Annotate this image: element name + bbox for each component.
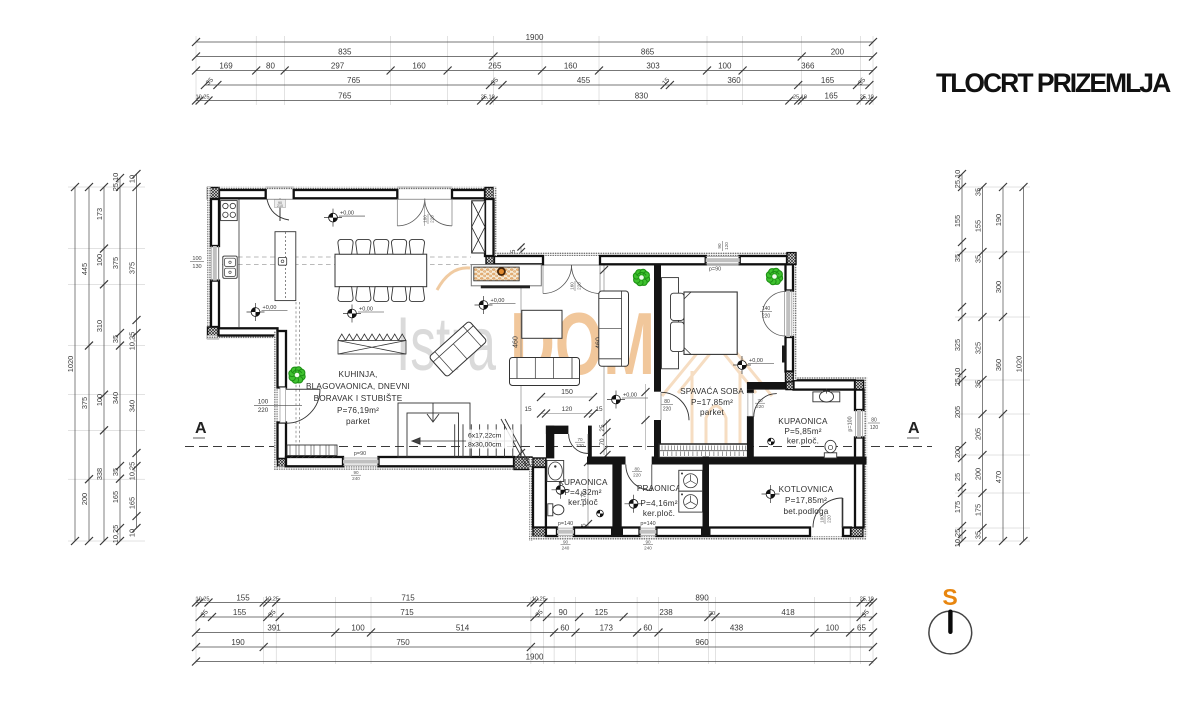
svg-text:SPAVAĆA SOBA: SPAVAĆA SOBA [680,386,744,396]
svg-text:310: 310 [95,320,104,332]
svg-text:240: 240 [352,476,360,481]
svg-text:35: 35 [953,254,962,262]
svg-text:165: 165 [127,497,136,509]
svg-text:TLOCRT PRIZEMLJA: TLOCRT PRIZEMLJA [936,68,1171,98]
svg-text:25: 25 [599,424,606,432]
svg-text:375: 375 [127,262,136,274]
svg-text:70: 70 [577,437,583,442]
svg-text:325: 325 [973,342,982,354]
svg-text:830: 830 [635,91,649,100]
svg-text:418: 418 [781,608,795,617]
svg-text:470: 470 [994,471,1003,483]
svg-text:180: 180 [423,215,428,223]
svg-text:155: 155 [233,608,247,617]
svg-text:KUPAONICA: KUPAONICA [558,478,608,487]
svg-text:210: 210 [277,204,283,208]
svg-text:220: 220 [576,443,584,448]
svg-text:25,10: 25,10 [953,368,962,387]
svg-text:PRAONICA: PRAONICA [637,484,682,493]
svg-text:265: 265 [488,61,502,70]
svg-text:70: 70 [599,438,606,446]
svg-text:80: 80 [664,399,670,405]
svg-text:10,25: 10,25 [111,525,120,544]
svg-text:P=4,16m²: P=4,16m² [640,499,677,508]
svg-text:240: 240 [562,546,570,551]
svg-text:190: 190 [994,214,1003,226]
svg-text:90: 90 [353,470,359,475]
svg-text:15: 15 [524,406,532,413]
svg-text:25,10: 25,10 [481,94,495,100]
svg-text:10,25: 10,25 [127,462,136,481]
svg-text:+0,00: +0,00 [749,358,763,364]
svg-text:205: 205 [973,428,982,440]
svg-text:165: 165 [825,91,839,100]
svg-text:160: 160 [564,61,578,70]
svg-text:+0,00: +0,00 [623,393,637,399]
svg-text:715: 715 [401,593,415,602]
svg-text:220: 220 [430,215,435,223]
svg-text:KUHINJA,: KUHINJA, [339,370,378,379]
svg-text:+0,00: +0,00 [359,307,373,313]
svg-text:6x17,22cm: 6x17,22cm [468,433,502,440]
svg-text:375: 375 [80,397,89,409]
svg-text:120: 120 [724,242,729,250]
svg-text:765: 765 [338,91,352,100]
svg-text:165: 165 [821,76,835,85]
svg-text:90: 90 [559,608,568,617]
svg-text:bet.podloga: bet.podloga [784,507,829,516]
svg-text:360: 360 [727,76,741,85]
svg-text:173: 173 [95,208,104,220]
svg-text:10,25: 10,25 [196,596,210,602]
svg-text:175: 175 [953,501,962,513]
svg-text:200: 200 [831,47,845,56]
svg-text:+0,00: +0,00 [340,211,354,217]
svg-text:35: 35 [111,468,120,476]
svg-text:BLAGOVAONICA, DNEVNI: BLAGOVAONICA, DNEVNI [306,382,410,391]
svg-text:1900: 1900 [526,33,544,42]
svg-text:360: 360 [994,359,1003,371]
svg-text:200: 200 [953,446,962,458]
svg-text:A: A [908,420,920,437]
svg-text:parket: parket [346,417,370,426]
svg-text:100: 100 [192,256,201,262]
svg-text:80: 80 [634,467,640,472]
svg-text:150: 150 [561,389,573,396]
svg-text:70: 70 [757,398,763,403]
svg-text:25,10: 25,10 [953,170,962,189]
svg-text:35: 35 [973,255,982,263]
svg-text:35: 35 [973,188,982,196]
svg-text:80: 80 [871,418,877,424]
svg-text:ker.ploč.: ker.ploč. [643,509,675,518]
svg-text:35: 35 [111,335,120,343]
svg-text:25,10: 25,10 [793,94,807,100]
svg-text:25: 25 [953,473,962,481]
svg-text:1020: 1020 [1014,356,1023,372]
svg-text:25,10: 25,10 [860,94,874,100]
svg-text:220: 220 [762,314,771,320]
svg-text:865: 865 [641,47,655,56]
svg-text:765: 765 [347,76,361,85]
svg-text:10: 10 [127,529,136,537]
svg-text:155: 155 [236,593,250,602]
svg-text:125: 125 [595,608,609,617]
svg-text:220: 220 [663,407,672,413]
svg-text:90: 90 [645,540,651,545]
svg-text:p=100: p=100 [848,416,854,431]
svg-text:297: 297 [331,61,345,70]
svg-text:P=17,85m²: P=17,85m² [691,398,733,407]
svg-text:200: 200 [973,468,982,480]
svg-text:200: 200 [80,493,89,505]
svg-text:parket: parket [700,408,724,417]
svg-text:35: 35 [973,380,982,388]
svg-text:120: 120 [870,425,879,431]
svg-text:130: 130 [192,264,201,270]
svg-text:KUPAONICA: KUPAONICA [778,417,828,426]
svg-text:25,10: 25,10 [860,596,874,602]
svg-text:445: 445 [80,263,89,275]
svg-text:10,25: 10,25 [265,596,279,602]
svg-text:100: 100 [95,394,104,406]
svg-text:391: 391 [267,623,281,632]
svg-text:KOTLOVNICA: KOTLOVNICA [779,485,834,494]
svg-text:190: 190 [231,638,245,647]
svg-text:160: 160 [570,282,575,290]
svg-text:238: 238 [659,608,673,617]
svg-text:10,25: 10,25 [532,596,546,602]
svg-text:10,25: 10,25 [953,529,962,548]
svg-text:160: 160 [412,61,426,70]
svg-text:375: 375 [111,257,120,269]
svg-text:1900: 1900 [526,652,544,661]
svg-text:100: 100 [95,254,104,266]
svg-text:325: 325 [953,339,962,351]
svg-text:240: 240 [644,546,652,551]
svg-text:455: 455 [577,76,591,85]
svg-text:100: 100 [718,61,732,70]
svg-text:P=4,32m²: P=4,32m² [564,488,601,497]
svg-text:P=76,19m²: P=76,19m² [337,406,379,415]
svg-text:303: 303 [646,61,660,70]
svg-text:514: 514 [456,623,470,632]
svg-text:1020: 1020 [66,356,75,372]
svg-text:205: 205 [953,406,962,418]
svg-text:340: 340 [127,400,136,412]
svg-text:ker.ploč: ker.ploč [568,498,598,507]
svg-text:BORAVAK I STUBIŠTE: BORAVAK I STUBIŠTE [314,393,403,403]
svg-text:ker.ploč.: ker.ploč. [787,437,819,446]
svg-text:P=17,85m²: P=17,85m² [785,496,827,505]
svg-text:10,25: 10,25 [196,94,210,100]
svg-text:8x30,00cm: 8x30,00cm [468,442,502,449]
svg-text:169: 169 [219,61,233,70]
svg-text:300: 300 [994,281,1003,293]
svg-text:90: 90 [563,540,569,545]
svg-text:960: 960 [695,638,709,647]
svg-text:80: 80 [266,61,275,70]
svg-text:90: 90 [717,243,722,249]
svg-text:120: 120 [562,406,573,413]
svg-text:220: 220 [633,473,641,478]
svg-text:366: 366 [801,61,815,70]
svg-text:220: 220 [577,282,582,290]
svg-text:750: 750 [396,638,410,647]
svg-text:220: 220 [756,404,764,409]
svg-text:155: 155 [973,220,982,232]
svg-text:155: 155 [953,215,962,227]
svg-text:25,10: 25,10 [111,173,120,192]
svg-text:p=90: p=90 [709,267,721,273]
svg-text:460: 460 [513,336,520,348]
svg-text:890: 890 [695,593,709,602]
svg-text:p=90: p=90 [354,451,366,457]
svg-text:65: 65 [857,623,866,632]
svg-text:140: 140 [762,306,771,312]
svg-text:165: 165 [111,491,120,503]
svg-text:438: 438 [730,623,744,632]
svg-text:60: 60 [643,623,652,632]
svg-text:835: 835 [338,47,352,56]
svg-text:100: 100 [826,623,840,632]
svg-text:173: 173 [600,623,614,632]
svg-text:338: 338 [95,468,104,480]
svg-text:340: 340 [111,392,120,404]
svg-text:p=140: p=140 [640,521,655,527]
svg-text:15: 15 [595,406,603,413]
svg-text:35: 35 [973,531,982,539]
svg-text:715: 715 [400,608,414,617]
svg-text:10: 10 [127,175,136,183]
svg-text:S: S [942,584,957,610]
svg-text:+0,00: +0,00 [491,298,505,304]
svg-text:100: 100 [351,623,365,632]
svg-text:P=5,85m²: P=5,85m² [784,427,821,436]
svg-text:10,25: 10,25 [127,332,136,351]
svg-text:175: 175 [973,504,982,516]
svg-text:20: 20 [709,611,715,617]
svg-text:220: 220 [258,407,269,414]
svg-text:A: A [195,420,207,437]
svg-text:+0,00: +0,00 [263,305,277,311]
svg-text:p=140: p=140 [558,521,573,527]
svg-text:100: 100 [258,399,269,406]
svg-text:60: 60 [560,623,569,632]
